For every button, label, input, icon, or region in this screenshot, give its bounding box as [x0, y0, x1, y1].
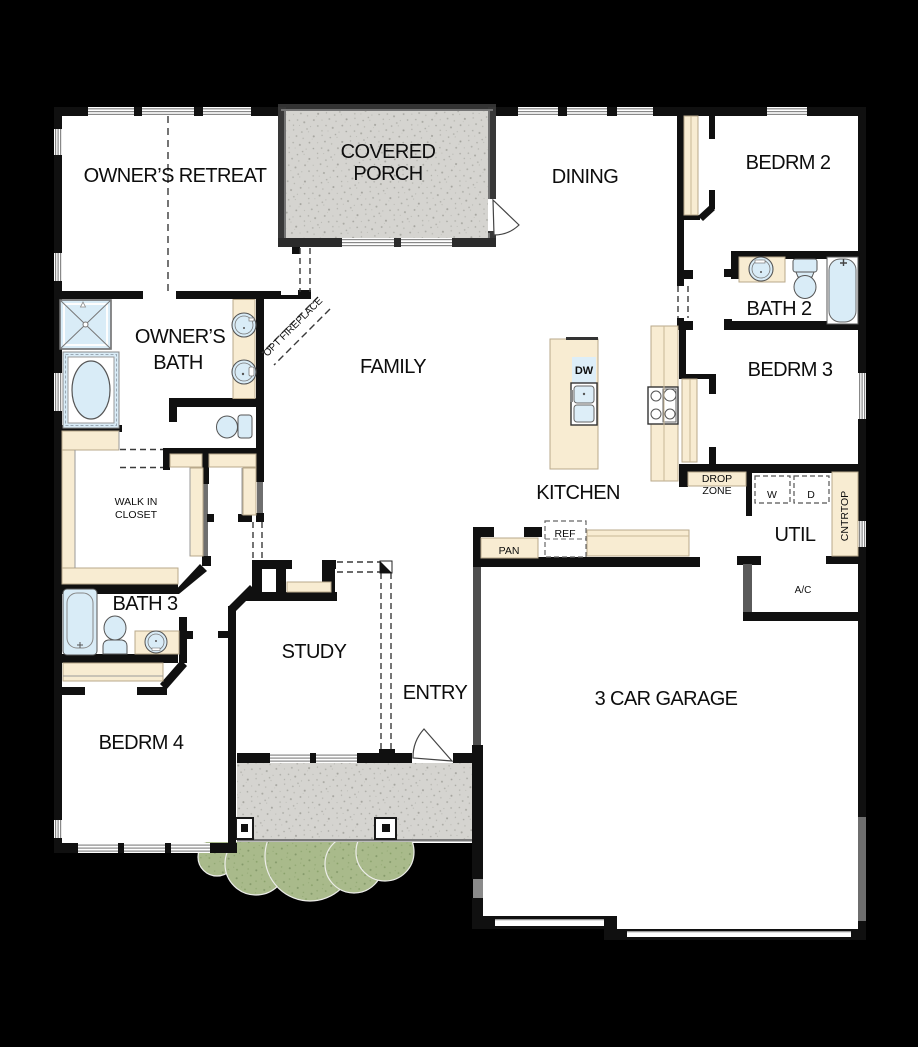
svg-text:BATH 2: BATH 2 [747, 298, 812, 320]
svg-text:UTIL: UTIL [775, 524, 816, 546]
svg-text:FAMILY: FAMILY [360, 356, 426, 378]
svg-text:OWNER’S RETREAT: OWNER’S RETREAT [84, 165, 267, 187]
svg-text:COVERED: COVERED [341, 141, 436, 163]
svg-text:PAN: PAN [499, 545, 520, 557]
svg-text:REF: REF [555, 528, 576, 540]
svg-text:BEDRM 2: BEDRM 2 [746, 152, 831, 174]
svg-text:DW: DW [575, 365, 594, 377]
svg-text:DROP: DROP [702, 473, 732, 485]
svg-text:OWNER’S: OWNER’S [135, 326, 226, 348]
svg-text:BEDRM 3: BEDRM 3 [748, 359, 833, 381]
svg-text:PORCH: PORCH [353, 163, 422, 185]
svg-text:CNTRTOP: CNTRTOP [839, 491, 851, 541]
svg-text:3 CAR GARAGE: 3 CAR GARAGE [595, 688, 738, 710]
svg-text:BATH 3: BATH 3 [113, 593, 178, 615]
svg-text:ENTRY: ENTRY [403, 682, 468, 704]
svg-text:STUDY: STUDY [282, 641, 347, 663]
svg-text:BEDRM 4: BEDRM 4 [99, 732, 184, 754]
svg-text:BATH: BATH [153, 352, 202, 374]
svg-text:DINING: DINING [552, 166, 618, 188]
svg-text:CLOSET: CLOSET [115, 509, 158, 521]
svg-text:D: D [807, 489, 815, 501]
svg-text:WALK IN: WALK IN [115, 496, 158, 508]
svg-text:ZONE: ZONE [702, 485, 731, 497]
svg-text:W: W [767, 489, 777, 501]
svg-text:A/C: A/C [795, 585, 812, 596]
svg-text:KITCHEN: KITCHEN [536, 482, 620, 504]
